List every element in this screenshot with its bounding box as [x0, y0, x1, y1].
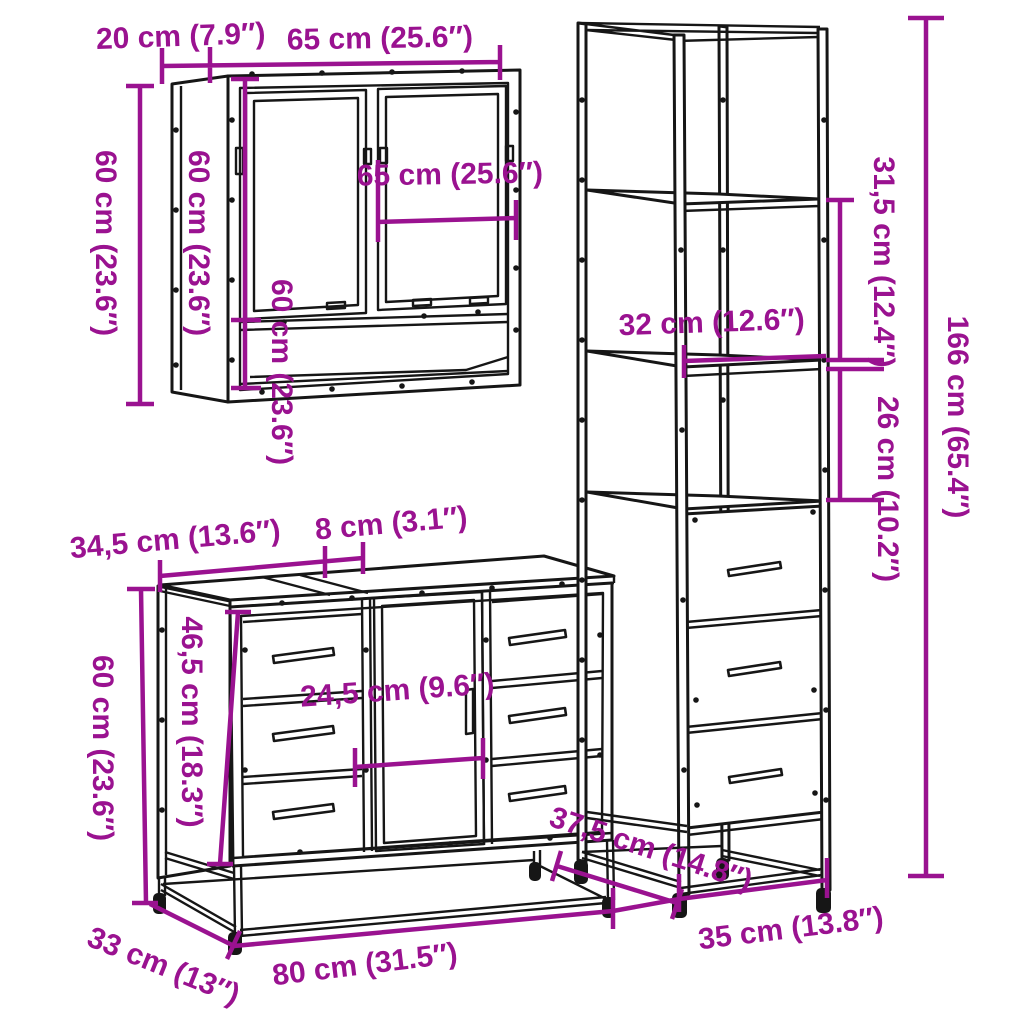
dim-sink-height-line — [127, 589, 158, 903]
dim-tall-height-line — [908, 18, 944, 876]
mirror-cabinet-drawing — [172, 68, 520, 402]
dim-label-sink-inner-height: 46,5 cm (18.3″) — [175, 616, 208, 827]
dim-label-tall-lower-spacing: 26 cm (10.2″) — [871, 396, 904, 582]
dim-label-sink-height: 60 cm (23.6″) — [86, 655, 119, 841]
dim-mirror-height-outer-line — [126, 86, 154, 404]
furniture-dimension-diagram: 20 cm (7.9″) 65 cm (25.6″) 60 cm (23.6″)… — [0, 0, 1024, 1024]
dim-label-mirror-inner-width: 65 cm (25.6″) — [356, 156, 543, 192]
dim-label-sink-width: 80 cm (31.5″) — [270, 937, 459, 992]
dimension-diagram-page: 20 cm (7.9″) 65 cm (25.6″) 60 cm (23.6″)… — [0, 0, 1024, 1024]
dim-label-mirror-side-height: 60 cm (23.6″) — [182, 150, 215, 336]
dim-label-sink-top-width: 34,5 cm (13.6″) — [69, 514, 282, 565]
dim-label-mirror-width: 65 cm (25.6″) — [286, 20, 473, 56]
dim-label-mirror-depth: 20 cm (7.9″) — [95, 17, 266, 56]
dim-label-sink-depth: 33 cm (13″) — [83, 921, 245, 1012]
sink-cabinet-drawing — [153, 556, 615, 955]
dim-label-tall-width: 35 cm (13.8″) — [696, 901, 885, 956]
dim-label-tall-upper-spacing: 31,5 cm (12.4″) — [867, 156, 900, 367]
dim-label-tall-height: 166 cm (65.4″) — [941, 316, 974, 519]
dim-label-mirror-height: 60 cm (23.6″) — [89, 150, 122, 336]
dim-label-mirror-inner-height: 60 cm (23.6″) — [265, 279, 298, 465]
dim-label-sink-top-gap: 8 cm (3.1″) — [314, 500, 469, 546]
dim-label-tall-shelf-width: 32 cm (12.6″) — [618, 303, 805, 342]
